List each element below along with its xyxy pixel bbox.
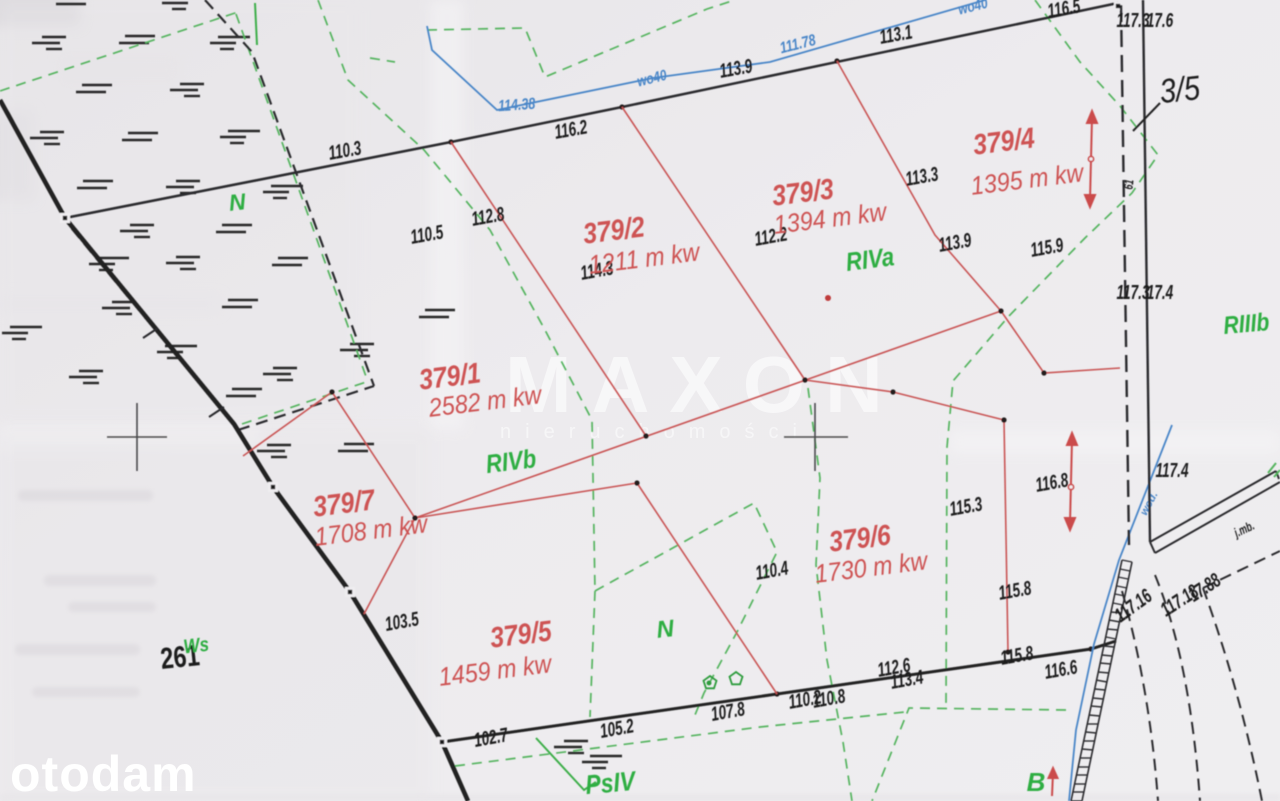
svg-text:61: 61 bbox=[1122, 179, 1137, 190]
svg-text:RIVb: RIVb bbox=[484, 444, 538, 479]
svg-text:3/5: 3/5 bbox=[1158, 68, 1202, 111]
svg-text:117.3: 117.3 bbox=[1116, 9, 1149, 31]
svg-text:Ws: Ws bbox=[182, 632, 210, 658]
svg-text:N: N bbox=[655, 615, 676, 644]
svg-text:117.3: 117.3 bbox=[1116, 281, 1149, 303]
svg-text:RIVa: RIVa bbox=[844, 243, 895, 278]
svg-text:N: N bbox=[228, 188, 248, 216]
svg-text:117.4: 117.4 bbox=[1155, 459, 1188, 481]
svg-text:114.38: 114.38 bbox=[498, 95, 536, 115]
svg-text:17.4: 17.4 bbox=[1147, 281, 1174, 303]
svg-text:RIIIb: RIIIb bbox=[1222, 307, 1270, 339]
svg-text:nieruchomości: nieruchomości bbox=[500, 421, 811, 443]
svg-text:B: B bbox=[1027, 767, 1046, 797]
svg-text:otodam: otodam bbox=[10, 746, 197, 801]
svg-text:PsIV: PsIV bbox=[584, 766, 638, 801]
svg-text:17.6: 17.6 bbox=[1147, 9, 1174, 31]
